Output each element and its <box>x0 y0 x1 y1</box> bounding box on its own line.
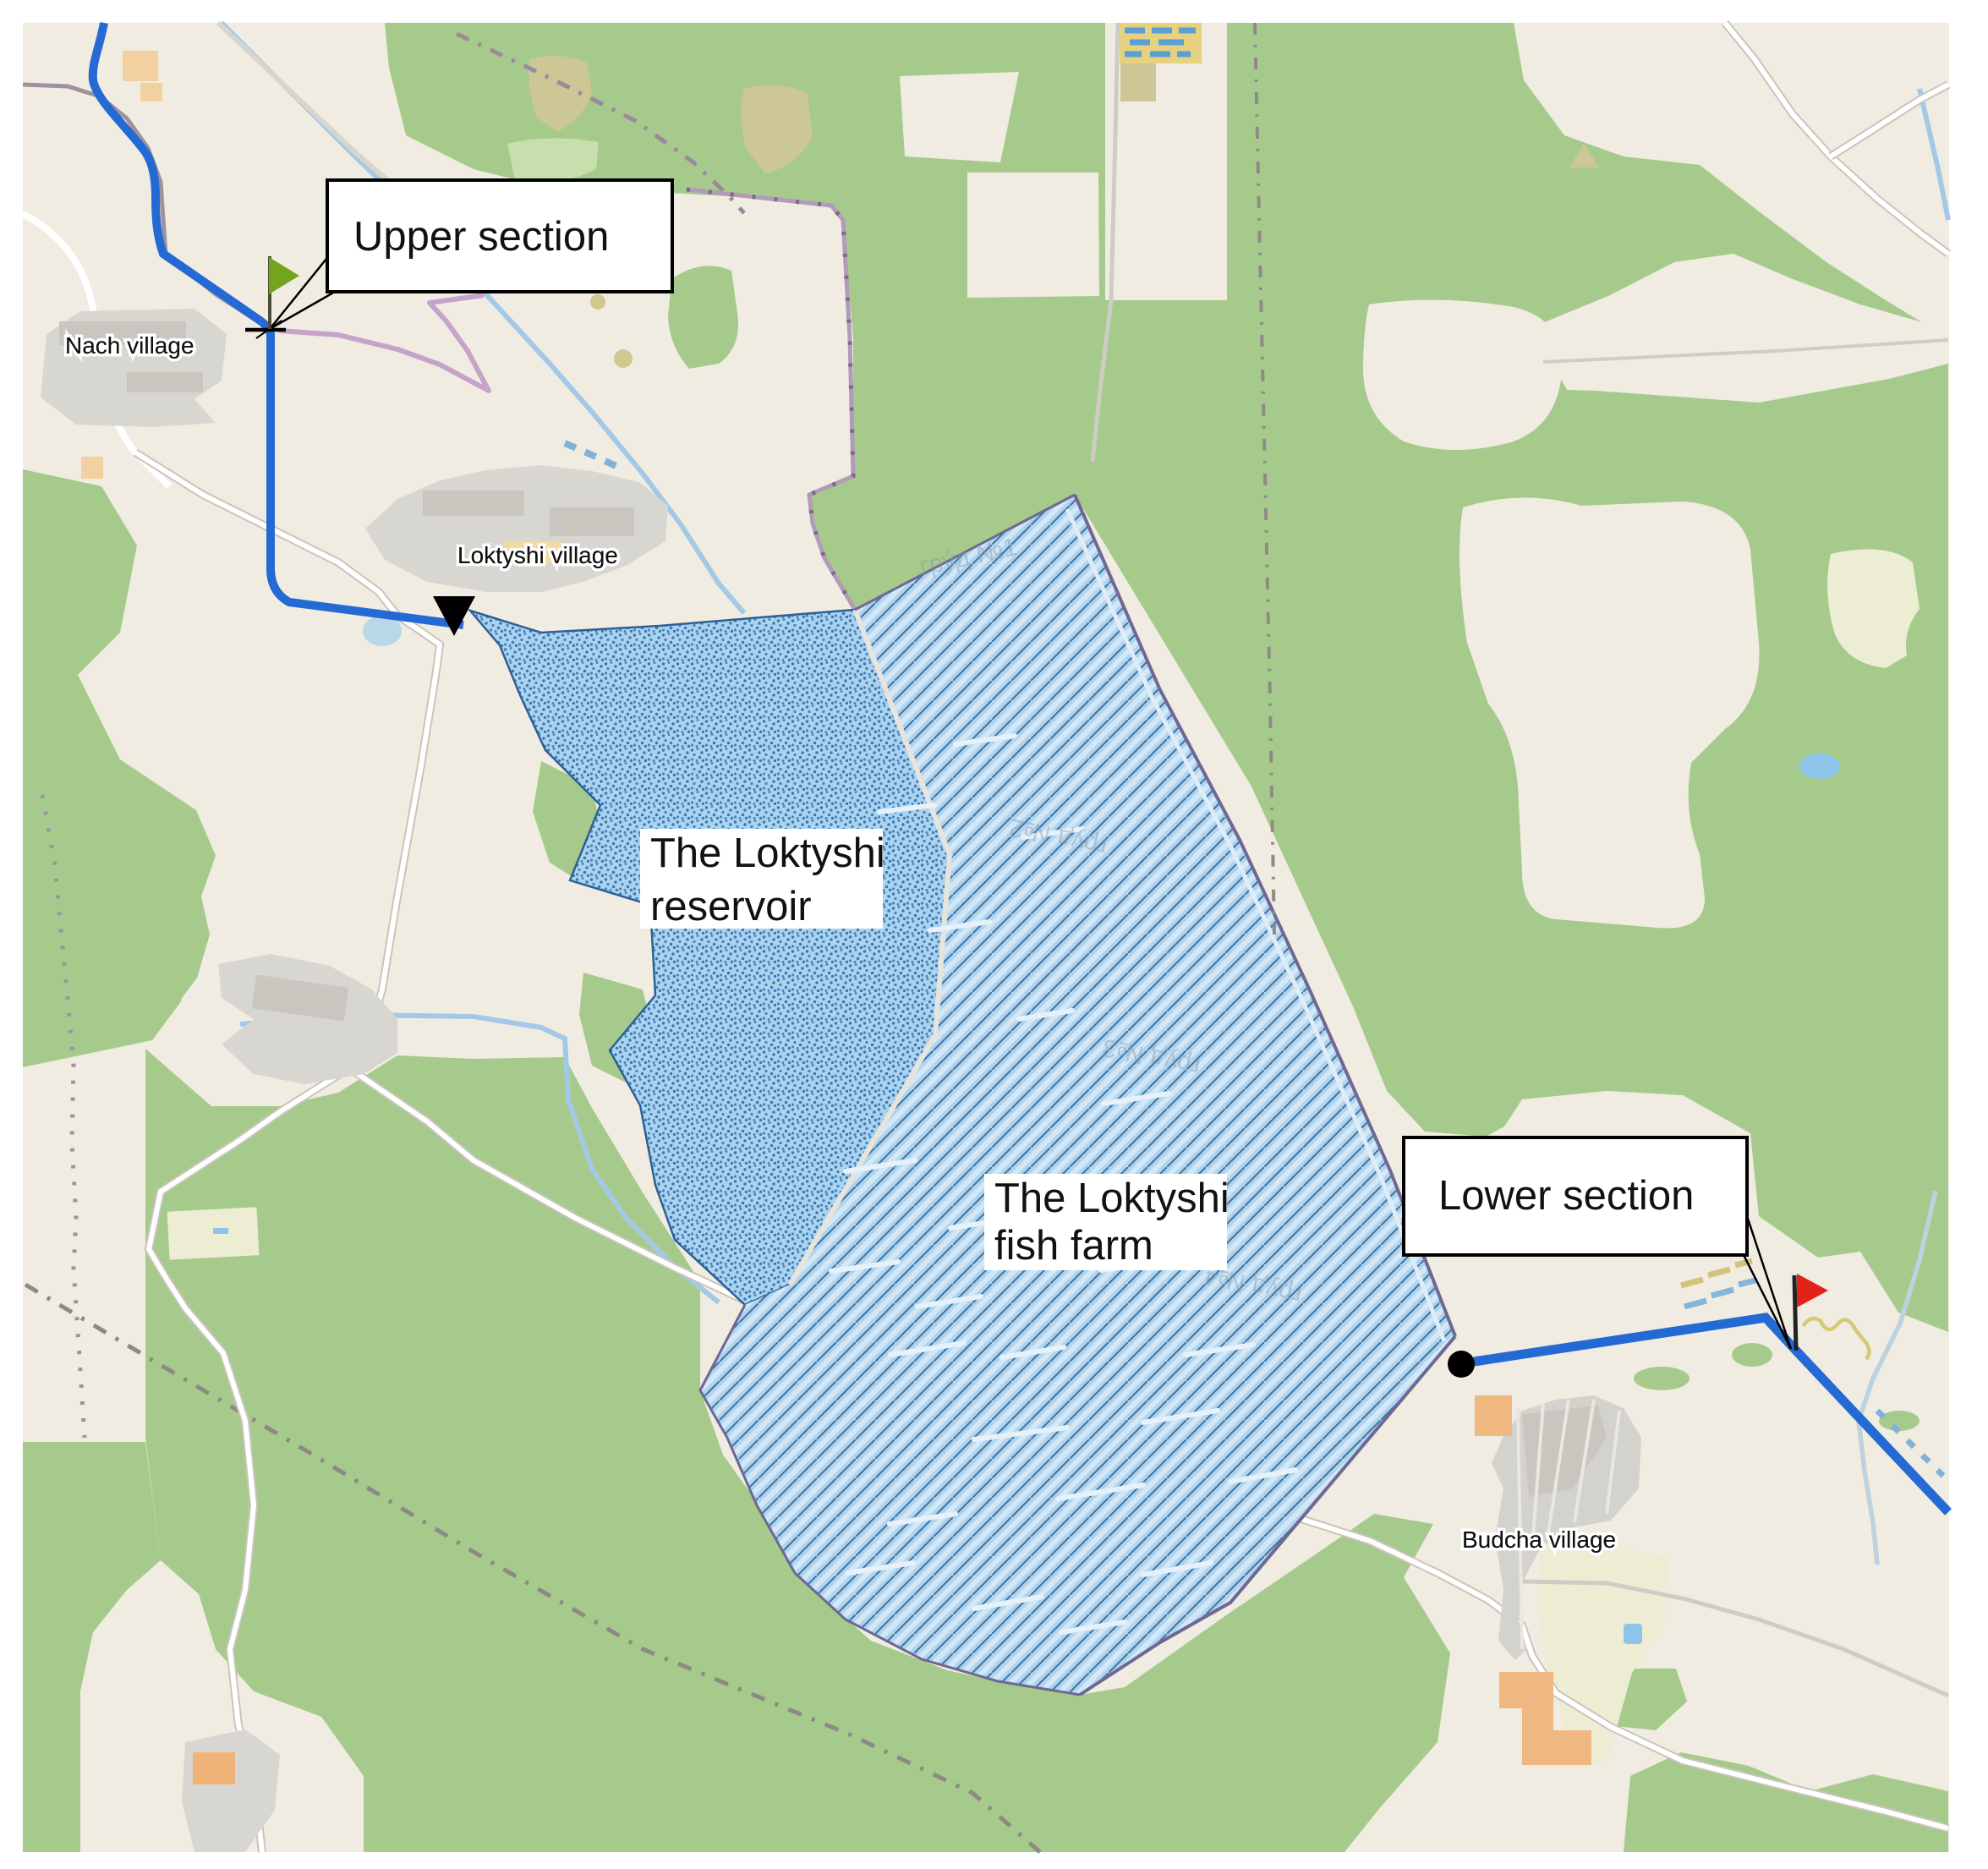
svg-text:Budcha village: Budcha village <box>1462 1526 1616 1553</box>
svg-text:Nach village: Nach village <box>65 332 194 359</box>
svg-text:Loktyshi village: Loktyshi village <box>457 542 618 568</box>
svg-text:The Loktyshi: The Loktyshi <box>994 1176 1229 1221</box>
svg-text:fish farm: fish farm <box>994 1223 1153 1269</box>
svg-text:Upper section: Upper section <box>353 214 609 260</box>
svg-text:The Loktyshi: The Loktyshi <box>650 830 885 876</box>
svg-text:Lower section: Lower section <box>1438 1173 1694 1219</box>
svg-text:reservoir: reservoir <box>650 884 812 929</box>
